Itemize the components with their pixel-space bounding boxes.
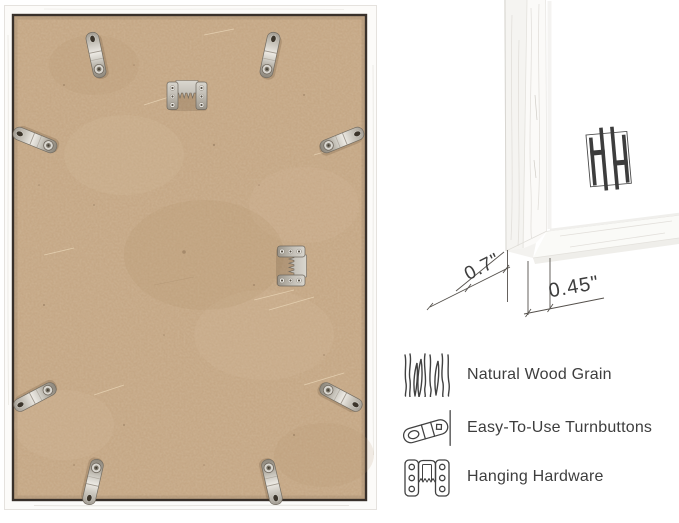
product-image: 0.7" 0.45" Natural Wood Grain	[0, 0, 679, 523]
feature-row: Easy-To-Use Turnbuttons	[400, 408, 679, 448]
turnbutton-icon	[400, 407, 454, 449]
feature-row: Hanging Hardware	[400, 455, 679, 499]
hanging-hardware-icon	[400, 455, 454, 499]
mat-board	[546, 0, 679, 231]
feature-label: Hanging Hardware	[467, 468, 604, 486]
face-width-dimension-label: 0.45"	[547, 272, 601, 303]
frame-back-photo	[4, 5, 377, 510]
feature-list: Natural Wood Grain Easy-To-Use Turnbutto…	[400, 344, 679, 514]
feature-label: Natural Wood Grain	[467, 366, 612, 384]
sawtooth-hanger	[167, 81, 207, 112]
wood-grain-icon	[400, 353, 454, 397]
depth-dimension-label: 0.7"	[461, 249, 504, 285]
feature-row: Natural Wood Grain	[400, 352, 679, 398]
feature-label: Easy-To-Use Turnbuttons	[467, 419, 652, 437]
sawtooth-hanger	[276, 246, 307, 286]
frame-back-graphic	[4, 5, 377, 510]
corner-closeup-photo: 0.7" 0.45"	[400, 0, 679, 330]
corner-closeup-graphic: 0.7" 0.45"	[400, 0, 679, 330]
